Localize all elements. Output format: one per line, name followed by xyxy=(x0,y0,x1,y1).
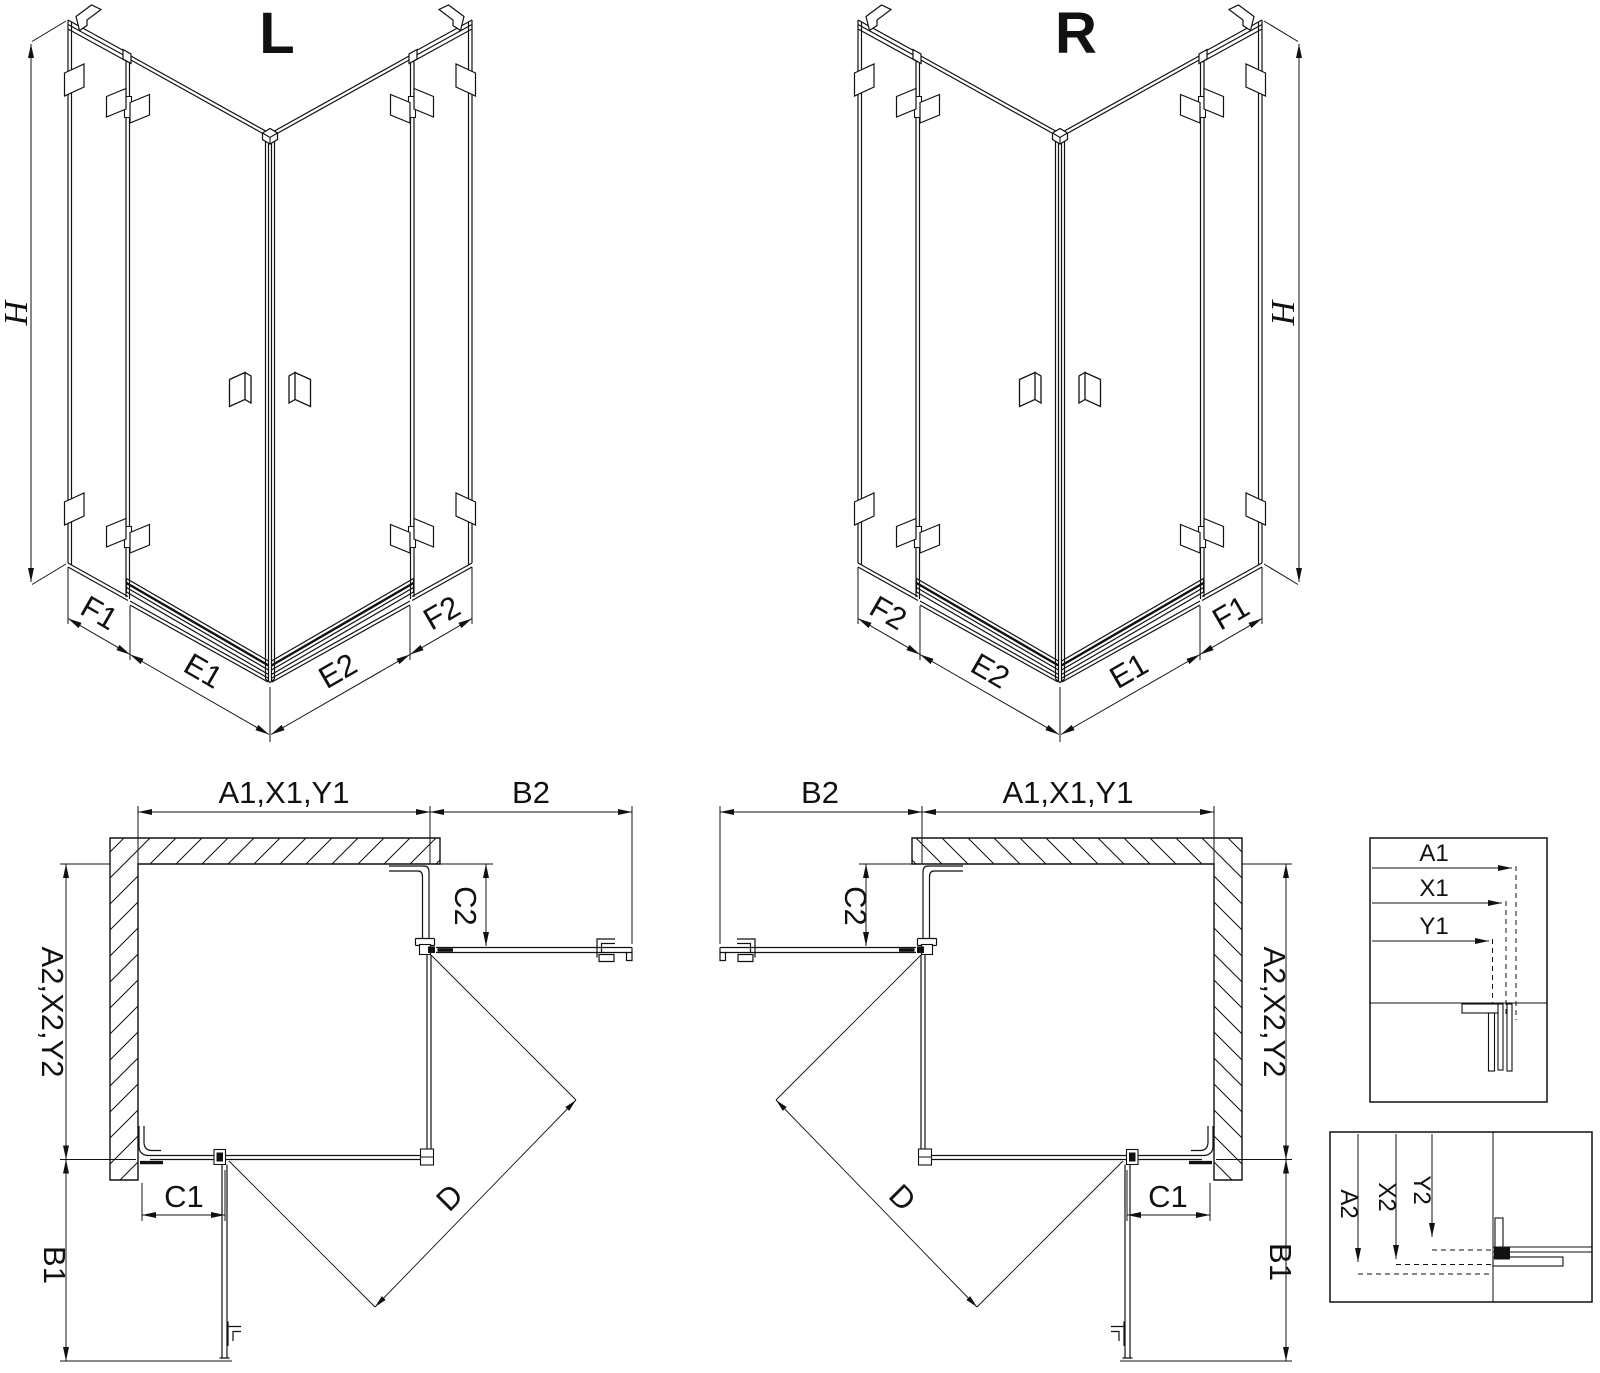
iso-right-height-label: H xyxy=(1264,299,1301,327)
iso-right-title: R xyxy=(1055,1,1097,66)
plan-left-width-label: A1,X1,Y1 xyxy=(219,775,350,810)
plan-right-c1-label: C1 xyxy=(1148,1179,1188,1214)
plan-left-depth-label: A2,X2,Y2 xyxy=(35,947,70,1078)
plan-right-depth-label: A2,X2,Y2 xyxy=(1257,947,1292,1078)
detail-x2-label: X2 xyxy=(1373,1182,1400,1211)
detail-dashed-refs xyxy=(1493,866,1517,1020)
detail-box-depths xyxy=(1330,1132,1592,1302)
plan-left-d-label: D xyxy=(429,1177,470,1218)
technical-drawing-sheet: L H F1 E1 E2 F2 R H F2 E2 E1 F1 A1,X1,Y1… xyxy=(0,0,1600,1373)
shower-enclosure-diagram: L H F1 E1 E2 F2 R H F2 E2 E1 F1 A1,X1,Y1… xyxy=(0,0,1600,1373)
plan-right-b2-label: B2 xyxy=(801,775,839,810)
detail-x1-label: X1 xyxy=(1419,875,1448,902)
plan-left-b1-label: B1 xyxy=(37,1246,72,1284)
detail-profile-section xyxy=(1462,1004,1512,1071)
plan-left-c2-label: C2 xyxy=(448,886,483,926)
iso-left-e2-label: E2 xyxy=(313,646,363,695)
plan-right-d-label: D xyxy=(882,1177,923,1218)
iso-left-e1-label: E1 xyxy=(178,646,228,695)
detail-y2-label: Y2 xyxy=(1408,1175,1435,1204)
iso-left-title: L xyxy=(259,1,294,66)
plan-view-right xyxy=(720,806,1292,1361)
plan-left-b2-label: B2 xyxy=(512,775,550,810)
detail-profile-section xyxy=(1493,1218,1592,1266)
plan-view-left xyxy=(60,806,632,1361)
detail-a1-label: A1 xyxy=(1419,840,1448,867)
iso-right-f1-label: F1 xyxy=(1206,589,1255,637)
detail-dashed-refs xyxy=(1358,1250,1497,1274)
plan-left-c1-label: C1 xyxy=(164,1179,204,1214)
plan-right-c2-label: C2 xyxy=(838,886,873,926)
iso-left-height-label: H xyxy=(0,299,34,327)
detail-box-widths xyxy=(1370,838,1547,1102)
detail-a2-label: A2 xyxy=(1335,1189,1362,1218)
iso-left-f1-label: F1 xyxy=(75,589,124,637)
iso-left-f2-label: F2 xyxy=(417,589,466,637)
plan-right-width-label: A1,X1,Y1 xyxy=(1003,775,1134,810)
iso-right-e1-label: E1 xyxy=(1104,646,1154,695)
detail-y1-label: Y1 xyxy=(1419,913,1448,940)
iso-right-f2-label: F2 xyxy=(864,589,913,637)
plan-right-b1-label: B1 xyxy=(1263,1243,1298,1281)
